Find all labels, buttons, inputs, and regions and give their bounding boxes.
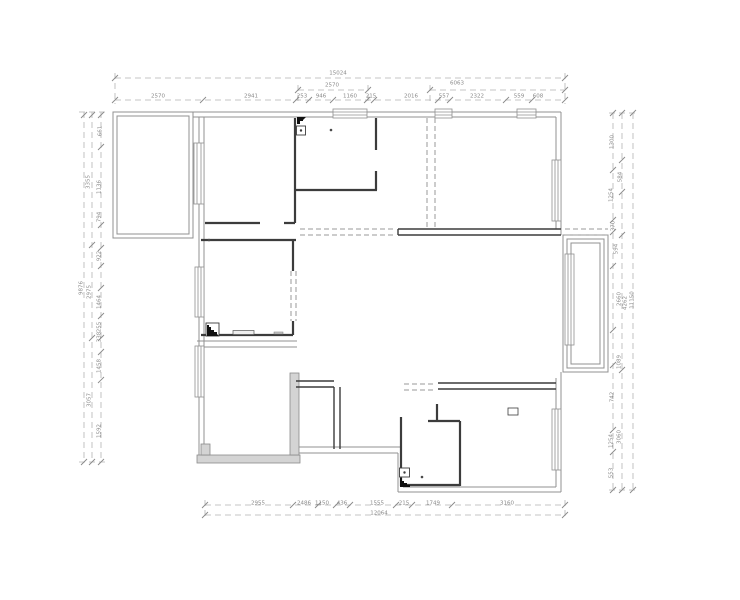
- flue-shaft-icon: [206, 323, 219, 336]
- floor-plan-canvas: [0, 0, 740, 600]
- exterior-walls: [113, 112, 608, 492]
- interior-walls: [201, 118, 561, 486]
- sill-mark: [233, 331, 254, 335]
- cased-openings: [291, 118, 608, 390]
- flue-shaft-icon: [297, 117, 307, 135]
- masonry-walls: [197, 373, 300, 463]
- window-hatch: [194, 109, 574, 470]
- plan-symbols: [206, 117, 518, 487]
- door-dot-icon: [208, 129, 424, 479]
- threshold-icon: [508, 408, 518, 415]
- sill-mark: [274, 332, 283, 334]
- windows: [194, 109, 574, 470]
- floor-plan-sheet: 1502425706063257029412539461160215201655…: [0, 0, 740, 600]
- balcony-top-left: [113, 112, 193, 238]
